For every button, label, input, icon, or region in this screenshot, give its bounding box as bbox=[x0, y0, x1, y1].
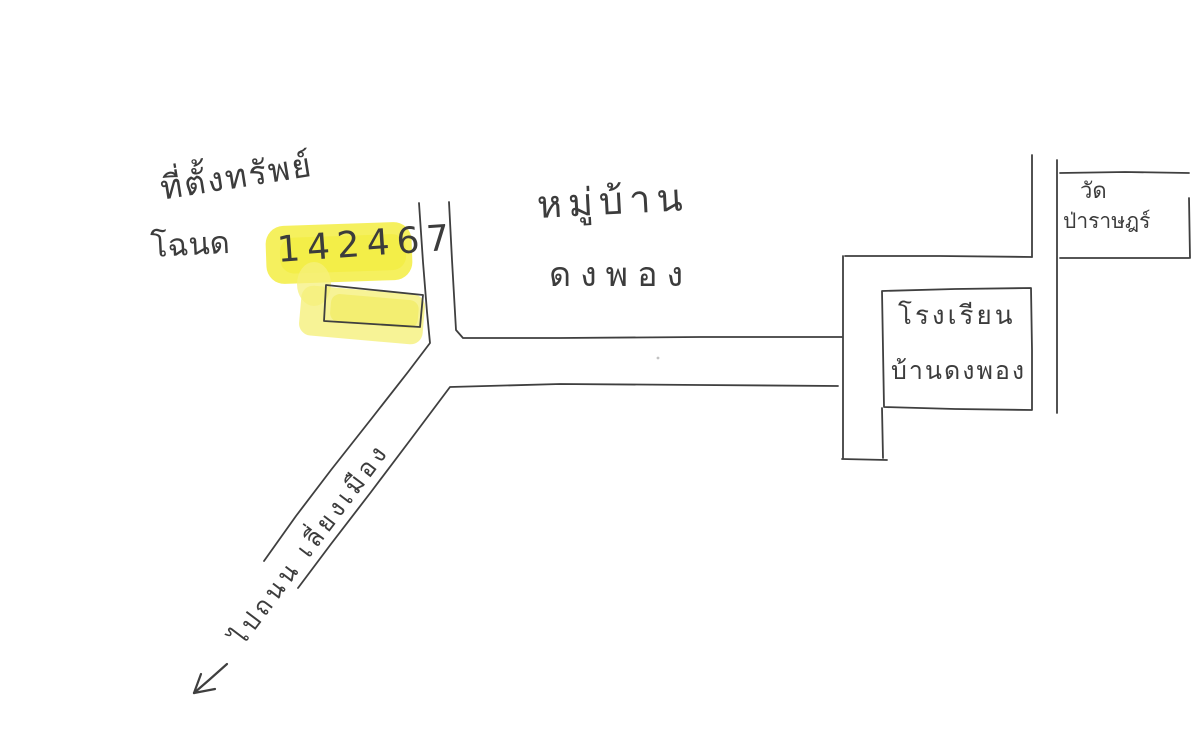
temple-label-line2: ป่าราษฎร์ bbox=[1063, 211, 1150, 232]
temple-label-line1: วัด bbox=[1080, 181, 1107, 203]
deed-label: โฉนด bbox=[150, 228, 231, 263]
school-label-line1: โรงเรียน bbox=[898, 303, 1015, 329]
hand-drawn-map: ที่ตั้งทรัพย์ โฉนด 142467 หมู่บ้าน ดงพอง… bbox=[0, 0, 1200, 737]
village-label-line2: ดงพอง bbox=[549, 258, 692, 292]
village-label-line1: หมู่บ้าน bbox=[536, 178, 689, 224]
direction-arrow-icon bbox=[194, 664, 227, 693]
school-label-line2: บ้านดงพอง bbox=[891, 358, 1026, 383]
